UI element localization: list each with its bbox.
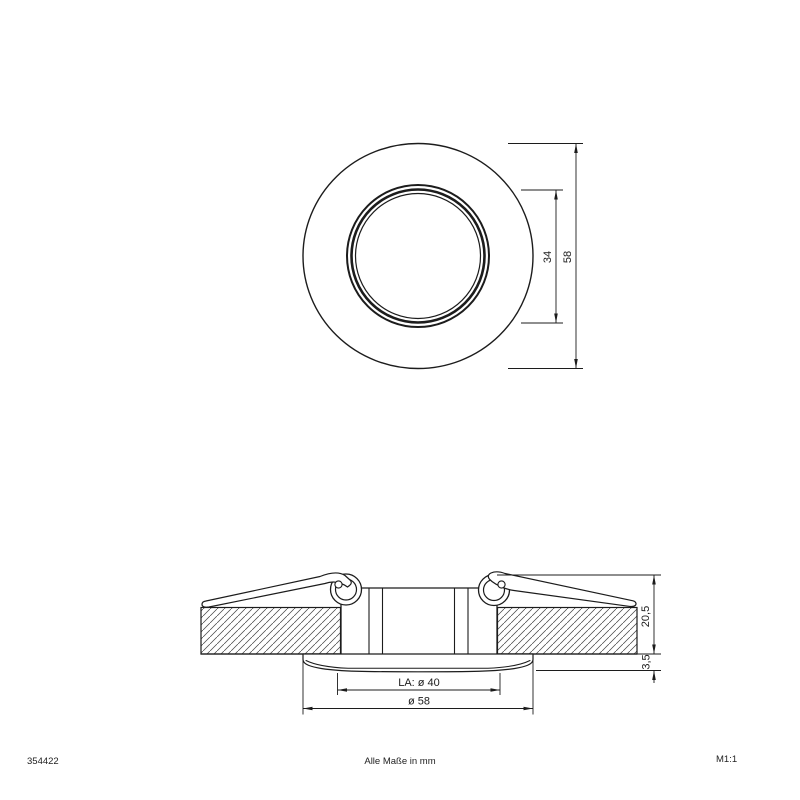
dimension-3-5: 3,5 — [536, 654, 661, 683]
clip-pivot — [335, 581, 342, 588]
arrow-down-icon — [574, 359, 578, 369]
footer: 354422 Alle Maße in mm M1:1 — [27, 754, 737, 767]
ceiling-section-right — [498, 608, 638, 655]
arrow-left-icon — [303, 707, 313, 711]
units-note: Alle Maße in mm — [364, 756, 435, 767]
technical-drawing-canvas: 34 58 — [0, 0, 800, 800]
dimension-label: 34 — [542, 251, 554, 263]
drawing-page: 34 58 — [0, 0, 800, 800]
trim-ring — [303, 654, 533, 672]
clip-pivot — [498, 581, 505, 588]
scale-label: M1:1 — [716, 754, 737, 765]
spring-clip-left — [202, 573, 362, 607]
dimension-la-40: LA: ø 40 — [338, 673, 501, 695]
clip-spring-arm — [202, 573, 351, 607]
dimension-label: 58 — [562, 251, 574, 263]
dimension-label: 20,5 — [640, 606, 652, 627]
side-view: 20,5 3,5 LA: ø 40 ø 58 — [201, 572, 661, 715]
arrow-left-icon — [338, 688, 348, 692]
trim-outline — [303, 654, 533, 672]
dimension-label: 3,5 — [640, 654, 652, 669]
bezel-ring-middle — [352, 190, 485, 323]
arrow-down-icon — [652, 645, 656, 655]
housing-can — [341, 588, 497, 655]
can-body — [341, 588, 497, 655]
arrow-up-icon — [574, 144, 578, 154]
dimension-34: 34 — [521, 190, 563, 323]
arrow-right-icon — [524, 707, 534, 711]
dimension-label: ø 58 — [408, 696, 430, 708]
trim-outer-circle — [303, 144, 533, 369]
article-number: 354422 — [27, 756, 59, 767]
dimension-label: LA: ø 40 — [398, 677, 440, 689]
arrow-up-icon — [652, 575, 656, 585]
clip-spring-arm — [488, 572, 636, 607]
spring-clip-right — [479, 572, 637, 607]
top-view: 34 58 — [303, 144, 583, 369]
bezel-ring-inner — [356, 194, 481, 319]
arrow-down-icon — [554, 314, 558, 324]
ceiling-section-left — [201, 608, 341, 655]
arrow-up-icon — [652, 671, 656, 681]
arrow-up-icon — [554, 190, 558, 200]
bezel-ring-outer — [347, 185, 489, 327]
arrow-right-icon — [491, 688, 501, 692]
